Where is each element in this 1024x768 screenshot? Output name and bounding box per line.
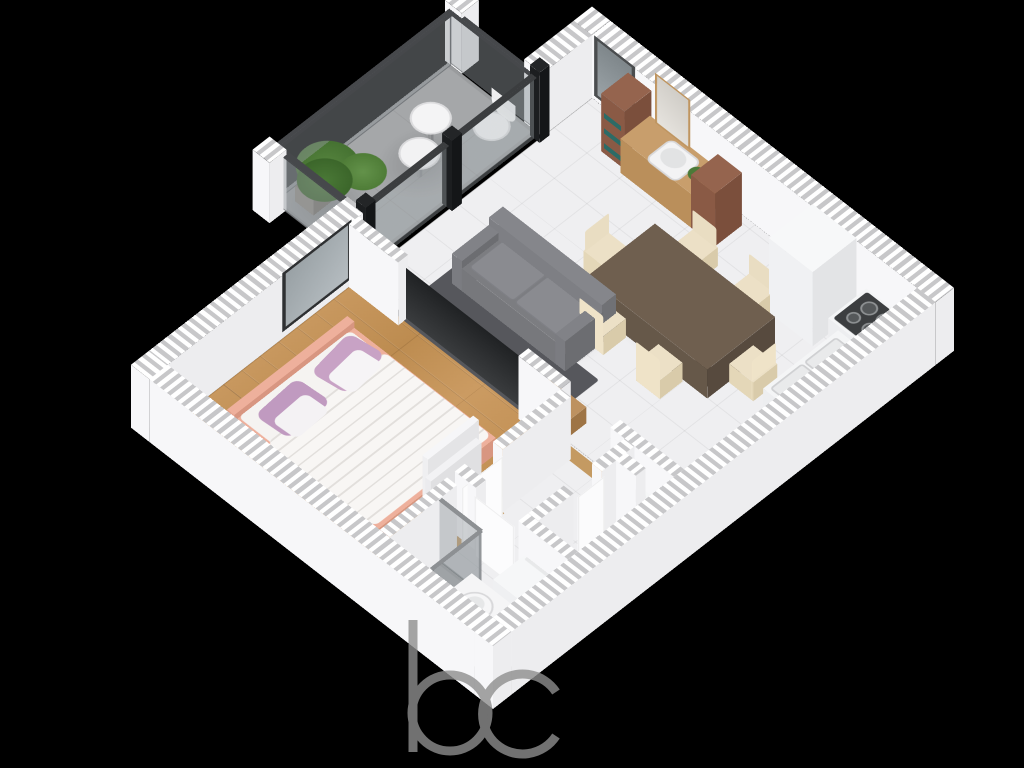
wall-corner-ne-se-face (936, 288, 954, 365)
watermark-b-bowl (412, 675, 488, 751)
watermark-c (483, 674, 556, 754)
balcony-corner-post-west-face (253, 150, 270, 224)
door-post-2-face (452, 133, 462, 211)
wall-corner-nw-sw-face (131, 365, 149, 442)
door-post-1-face (540, 65, 550, 143)
watermark-logo (380, 606, 600, 766)
floorplan-render (0, 0, 1024, 768)
